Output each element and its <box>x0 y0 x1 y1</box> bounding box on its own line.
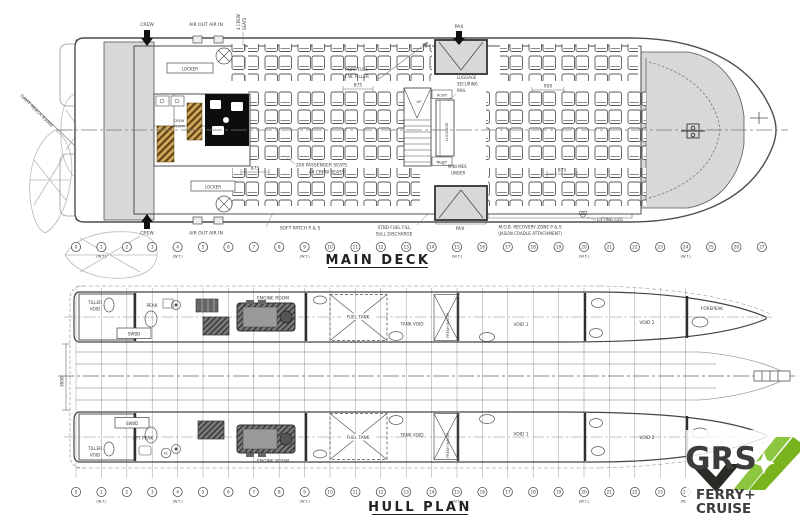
tiller-void-upper-l2: VOID <box>90 307 101 312</box>
station-number: 5 <box>202 490 205 496</box>
fresh-water-upper-label: FRESH WATER <box>446 312 450 338</box>
mini-mes-label-2: UNDER <box>451 171 466 176</box>
void2-lower-label: VOID 2 <box>640 435 655 441</box>
station-wt-label: (W.T.) <box>299 255 310 259</box>
station-number: 5 <box>202 245 205 251</box>
station-number: 9 <box>303 245 306 251</box>
wc-floor-hatch-2 <box>187 103 202 140</box>
tank-void-upper-label: TANK VOID <box>400 322 424 327</box>
dim-875-a: 875 <box>354 83 363 89</box>
logo-cruise-text: CRUISE <box>696 501 751 517</box>
station-number: 22 <box>632 490 638 496</box>
station-number: 12 <box>378 245 384 251</box>
station-number: 8 <box>278 490 281 496</box>
station-number: 19 <box>556 245 562 251</box>
ga-plan-svg: DAVIT REACH R3000 V.L. V.L. <box>0 0 800 530</box>
station-number: 26 <box>734 245 740 251</box>
hull-plan: 01(W.T.)234(W.T.)56789(W.T.)101112131415… <box>58 286 795 515</box>
station-number: 15 <box>454 245 460 251</box>
station-number: 16 <box>480 245 486 251</box>
station-number: 13 <box>403 245 409 251</box>
luggage-rail-label-3: RAIL <box>457 88 467 93</box>
general-arrangement-drawing: DAVIT REACH R3000 V.L. V.L. <box>0 0 800 530</box>
station-number: 2 <box>125 245 128 251</box>
air-out-in-top-label: AIR OUT AIR IN <box>189 22 223 28</box>
station-number: 20 <box>581 490 587 496</box>
station-number: 9 <box>303 490 306 496</box>
station-number: 19 <box>556 490 562 496</box>
station-wt-label: (W.T.) <box>299 500 310 504</box>
fuel-tank-upper-label: FUEL TANK <box>347 315 370 320</box>
fuel-tank-lower-label: FUEL TANK <box>347 435 370 440</box>
station-number: 2 <box>125 490 128 496</box>
locker-bottom-label: LOCKER <box>205 184 221 189</box>
station-number: 18 <box>530 490 536 496</box>
crew-bottom-label: CREW <box>140 231 154 237</box>
station-number: 6 <box>227 490 230 496</box>
stbd-fuel-label-2: SULL DISCHARGE <box>376 232 413 237</box>
engine-room-upper-label: ENGINE ROOM <box>257 296 289 302</box>
bow-fitting <box>754 371 790 381</box>
station-number: 12 <box>378 490 384 496</box>
station-number: 17 <box>505 490 511 496</box>
ac-unit-label: AC <box>164 452 169 456</box>
aft-dashed-boundary <box>70 286 84 468</box>
engine-room-lower-label: ENGINE ROOM <box>257 459 289 465</box>
swbd-label-upper: SWBD <box>128 332 140 337</box>
station-number: 14 <box>429 245 435 251</box>
aft-peak-label: AFT PEAK <box>133 436 154 442</box>
lifting-lug-label: LIFTING LUG <box>597 217 623 222</box>
soft-patch-label: SOFT PATCH P & S <box>280 226 321 232</box>
hull-plan-stations: 01(W.T.)234(W.T.)56789(W.T.)101112131415… <box>71 288 691 504</box>
station-number: 4 <box>176 490 179 496</box>
dim-3000-label: 3000 <box>60 376 65 387</box>
station-wt-label: (W.T.) <box>96 255 107 259</box>
station-number: 11 <box>353 245 359 251</box>
station-wt-label: (W.T.) <box>172 500 183 504</box>
peak-label: PEAK <box>146 303 157 309</box>
davit-reach-label: DAVIT REACH R3000 <box>19 93 55 129</box>
swbd-label-lower: SWBD <box>126 421 138 426</box>
station-number: 11 <box>353 490 359 496</box>
station-number: 8 <box>278 245 281 251</box>
port-fuel-label-1: PORT FUEL <box>345 67 369 73</box>
crew-room-label-1: CREW <box>174 119 185 123</box>
station-number: 24 <box>683 245 689 251</box>
station-number: 4 <box>176 245 179 251</box>
void1-upper-label: VOID 1 <box>514 322 529 328</box>
luggage-rail-label-1: LUGGAGE <box>457 75 477 80</box>
locker-top-label: LOCKER <box>182 66 198 71</box>
dim-950: 950 <box>544 84 553 90</box>
station-wt-label: (W.T.) <box>96 500 107 504</box>
tiller-void-lower-l2: VOID <box>90 453 101 458</box>
tank-void-lower-label: TANK VOID <box>400 433 424 438</box>
mob-label-1: M.O.B. RECOVERY ZONE P & S <box>498 225 561 230</box>
crew-seats-label-1: 4 CREW <box>236 14 241 30</box>
station-number: 18 <box>530 245 536 251</box>
station-number: 20 <box>581 245 587 251</box>
main-deck-plan: DAVIT REACH R3000 V.L. V.L. <box>19 14 788 278</box>
hull-plan-title: HULL PLAN <box>368 500 472 515</box>
tunnel-lines <box>76 286 790 468</box>
station-number: 23 <box>657 490 663 496</box>
station-number: 0 <box>75 490 78 496</box>
pax-door-top <box>435 40 487 74</box>
engine-room-lower-equipment: AC <box>139 421 295 458</box>
station-number: 10 <box>327 490 333 496</box>
wc-floor-hatch-1 <box>157 126 174 162</box>
stairs: UP <box>404 88 431 166</box>
tiller-void-lower-l1: TILLER <box>87 446 102 451</box>
pax-door-bottom <box>435 186 487 220</box>
station-wt-label: (W.T.) <box>579 500 590 504</box>
logo-brand-text: GRS <box>685 441 757 477</box>
forepeak-upper-label: FOREPEAK <box>701 306 723 311</box>
air-out-in-bottom-label: AIR OUT AIR IN <box>189 231 223 237</box>
main-deck-title: MAIN DECK <box>325 253 430 268</box>
station-number: 27 <box>759 245 765 251</box>
rcwy-top-label: RCWY <box>437 93 448 97</box>
station-number: 14 <box>429 490 435 496</box>
station-number: 7 <box>252 245 255 251</box>
passenger-seats-label-2: +4 CREW SEATS <box>308 170 344 176</box>
station-number: 7 <box>252 490 255 496</box>
passenger-seats-label-1: 200 PASSENGER SEATS <box>296 163 347 169</box>
station-number: 25 <box>708 245 714 251</box>
station-number: 22 <box>632 245 638 251</box>
station-number: 17 <box>505 245 511 251</box>
crew-room-label-2: ROOM <box>173 125 184 129</box>
luggage-vert-label: LUGGAGE <box>444 122 449 141</box>
station-wt-label: (W.T.) <box>579 255 590 259</box>
station-number: 1 <box>100 245 103 251</box>
void2-upper-label: VOID 2 <box>640 320 655 326</box>
mini-mes-label-1: MINI MES <box>448 164 467 169</box>
port-fuel-label-2: F.W. FILLER <box>345 74 369 80</box>
station-number: 16 <box>480 490 486 496</box>
station-wt-label: (W.T.) <box>172 255 183 259</box>
grs-ferry-cruise-logo: GRS FERRY+ CRUISE <box>685 430 800 518</box>
station-number: 21 <box>607 245 613 251</box>
station-wt-label: (W.T.) <box>680 255 691 259</box>
station-number: 3 <box>151 490 154 496</box>
mob-label-2: (JASON CRADLE ATTACHMENT) <box>498 231 562 236</box>
station-number: 3 <box>151 245 154 251</box>
tiller-void-upper-l1: TILLER <box>87 300 102 305</box>
station-number: 6 <box>227 245 230 251</box>
station-number: 23 <box>657 245 663 251</box>
steering-gear-upper <box>145 311 157 327</box>
station-number: 0 <box>75 245 78 251</box>
station-number: 1 <box>100 490 103 496</box>
crew-top-label: CREW <box>140 22 154 28</box>
luggage-rack: LUGGAGE <box>436 100 454 156</box>
pax-top-label: PAX <box>455 24 464 30</box>
pax-bottom-label: PAX <box>456 226 465 232</box>
void1-lower-label: VOID 1 <box>514 432 529 438</box>
station-number: 10 <box>327 245 333 251</box>
station-number: 21 <box>607 490 613 496</box>
up-label: UP <box>416 99 422 104</box>
crew-seats-label-2: SEATS <box>242 17 247 30</box>
stbd-fuel-label-1: STBD FUEL FILL <box>378 225 411 230</box>
dim-875-c: 875 <box>558 168 567 174</box>
station-wt-label: (W.T.) <box>452 255 463 259</box>
crew-lobby-area <box>104 42 154 220</box>
station-number: 13 <box>403 490 409 496</box>
fresh-water-lower-label: FRESH WATER <box>446 432 450 458</box>
luggage-rail-label-2: SECURING <box>457 82 478 87</box>
dim-875-b: 875 <box>251 166 260 172</box>
station-number: 15 <box>454 490 460 496</box>
